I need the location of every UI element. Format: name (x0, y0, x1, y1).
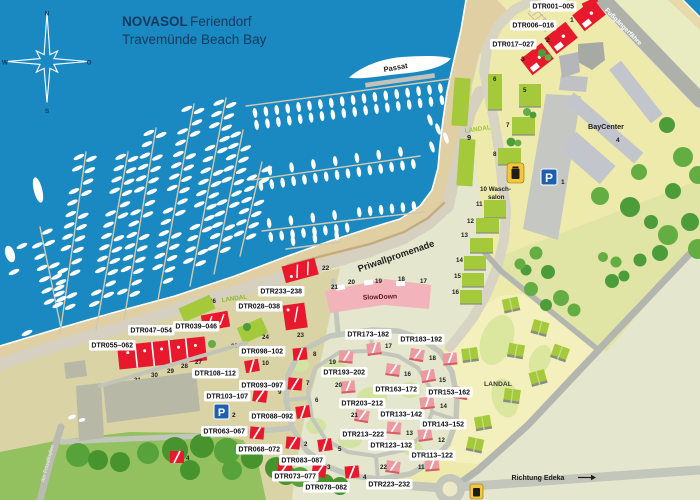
svg-text:DTR233–238: DTR233–238 (260, 289, 302, 296)
svg-text:21: 21 (331, 284, 338, 291)
svg-text:16: 16 (404, 371, 411, 378)
svg-text:8: 8 (313, 351, 317, 358)
svg-text:6: 6 (315, 397, 319, 404)
svg-text:W: W (2, 60, 9, 67)
svg-text:6: 6 (493, 76, 497, 83)
svg-text:DTR039–046: DTR039–046 (175, 324, 217, 331)
svg-text:10: 10 (262, 360, 269, 367)
svg-text:salon: salon (488, 194, 505, 201)
svg-text:23: 23 (297, 332, 304, 339)
svg-text:Travemünde Beach Bay: Travemünde Beach Bay (122, 32, 267, 47)
svg-text:1: 1 (570, 17, 574, 24)
svg-text:7: 7 (306, 380, 310, 387)
svg-text:22: 22 (380, 464, 387, 471)
svg-text:DTR223–232: DTR223–232 (368, 482, 410, 489)
svg-text:Richtung Edeka: Richtung Edeka (512, 475, 565, 482)
svg-text:17: 17 (420, 278, 427, 285)
svg-text:BayCenter: BayCenter (588, 122, 624, 131)
svg-text:N: N (45, 11, 50, 18)
svg-text:27: 27 (195, 359, 202, 366)
svg-text:DTR047–054: DTR047–054 (130, 328, 172, 335)
svg-text:22: 22 (322, 265, 330, 272)
svg-text:2: 2 (232, 412, 236, 419)
svg-text:Feriendorf: Feriendorf (190, 14, 252, 29)
svg-text:20: 20 (348, 279, 355, 286)
svg-text:P: P (218, 407, 225, 419)
svg-text:2: 2 (546, 37, 550, 44)
svg-text:19: 19 (375, 278, 382, 285)
svg-text:DTR203–212: DTR203–212 (341, 401, 383, 408)
svg-text:19: 19 (329, 359, 336, 366)
svg-text:12: 12 (467, 218, 474, 225)
svg-text:29: 29 (167, 368, 174, 375)
svg-text:11: 11 (476, 201, 483, 208)
svg-text:DTR213–222: DTR213–222 (342, 432, 384, 439)
svg-text:DTR063–067: DTR063–067 (203, 429, 245, 436)
svg-text:NOVASOL: NOVASOL (122, 14, 188, 29)
svg-text:DTR083–087: DTR083–087 (281, 458, 323, 465)
svg-text:DTR078–082: DTR078–082 (305, 485, 347, 492)
svg-text:16: 16 (452, 289, 459, 296)
svg-text:13: 13 (461, 232, 468, 239)
svg-text:DTR103–107: DTR103–107 (206, 394, 248, 401)
svg-text:DTR133–142: DTR133–142 (380, 412, 422, 419)
svg-text:DTR001–005: DTR001–005 (532, 4, 574, 11)
svg-text:DTR068–072: DTR068–072 (238, 447, 280, 454)
svg-text:DTR193–202: DTR193–202 (323, 370, 365, 377)
svg-text:DTR173–182: DTR173–182 (347, 332, 389, 339)
svg-text:10 Wasch-: 10 Wasch- (480, 186, 511, 193)
svg-text:3: 3 (327, 464, 331, 471)
svg-text:18: 18 (398, 276, 405, 283)
svg-text:DTR073–077: DTR073–077 (274, 474, 316, 481)
svg-text:24: 24 (262, 334, 269, 341)
svg-text:1: 1 (561, 179, 565, 186)
svg-text:S: S (45, 108, 50, 115)
svg-text:15: 15 (439, 377, 446, 384)
svg-text:17: 17 (385, 343, 392, 350)
svg-text:8: 8 (493, 151, 497, 158)
svg-text:O: O (86, 60, 91, 67)
svg-text:14: 14 (440, 403, 447, 410)
svg-text:DTR006–016: DTR006–016 (512, 23, 554, 30)
svg-text:3: 3 (521, 56, 525, 63)
svg-text:4: 4 (186, 455, 190, 462)
svg-text:2: 2 (304, 441, 308, 448)
svg-text:21: 21 (351, 412, 358, 419)
svg-text:DTR055–062: DTR055–062 (91, 343, 133, 350)
svg-text:DTR183–192: DTR183–192 (400, 337, 442, 344)
svg-text:DTR113–122: DTR113–122 (412, 453, 453, 460)
svg-text:18: 18 (429, 355, 436, 362)
svg-text:DTR028–038: DTR028–038 (238, 304, 280, 311)
svg-text:9: 9 (467, 133, 471, 142)
svg-text:DTR108–112: DTR108–112 (195, 371, 236, 378)
svg-text:DTR163–172: DTR163–172 (375, 387, 417, 394)
svg-text:DTR088–092: DTR088–092 (251, 414, 293, 421)
svg-text:7: 7 (506, 122, 510, 129)
svg-text:DTR098–102: DTR098–102 (241, 349, 283, 356)
svg-text:15: 15 (454, 273, 461, 280)
svg-text:DTR143–152: DTR143–152 (422, 422, 464, 429)
svg-text:DTR153–162: DTR153–162 (428, 390, 470, 397)
svg-text:P: P (545, 171, 553, 185)
svg-text:DTR093–097: DTR093–097 (241, 383, 283, 390)
svg-text:14: 14 (456, 257, 463, 264)
svg-text:DTR017–027: DTR017–027 (492, 42, 534, 49)
svg-text:12: 12 (438, 437, 445, 444)
svg-text:SlowDown: SlowDown (363, 293, 398, 301)
svg-text:11: 11 (418, 464, 425, 471)
svg-text:28: 28 (181, 363, 188, 370)
svg-text:DTR123–132: DTR123–132 (370, 443, 412, 450)
svg-text:5: 5 (523, 87, 527, 94)
svg-text:20: 20 (335, 382, 342, 389)
svg-text:LANDAL: LANDAL (484, 381, 512, 388)
svg-text:13: 13 (406, 430, 413, 437)
svg-text:4: 4 (616, 137, 620, 144)
svg-text:5: 5 (338, 446, 342, 453)
